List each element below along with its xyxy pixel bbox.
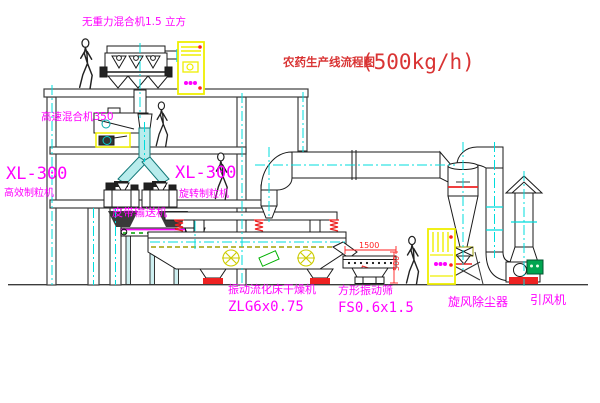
indicator-red-dot	[449, 235, 453, 239]
label-dryer-name: 振动流化床干燥机	[228, 282, 316, 296]
label-gravityless-mixer: 无重力混合机1.5 立方	[82, 15, 186, 28]
label-fan: 引风机	[530, 293, 566, 307]
label-granulator-right-name: 旋转制粒机	[179, 187, 229, 200]
exhaust-duct	[261, 150, 452, 218]
person-figure-1	[80, 39, 92, 89]
label-granulator-right-model: XL-300	[175, 163, 236, 183]
page-title-capacity: (500kg/h)	[361, 50, 475, 74]
cad-flow-diagram: 农药生产线流程图 (500kg/h) 无重力混合机1.5 立方 高速混合机350…	[0, 0, 600, 403]
granulator-left	[104, 183, 139, 207]
gravityless-mixer	[100, 46, 177, 113]
indicator-red-dot	[198, 86, 202, 90]
control-cabinet-ground	[428, 229, 455, 284]
label-dryer-model: ZLG6x0.75	[228, 299, 304, 315]
label-granulator-left-name: 高效制粒机	[4, 186, 54, 199]
person-figure-2	[156, 102, 167, 147]
drawing-surface: 农药生产线流程图 (500kg/h) 无重力混合机1.5 立方 高速混合机350…	[0, 0, 600, 403]
dryer-hood-plate	[165, 212, 337, 220]
vibrating-screen	[343, 256, 396, 284]
fan-motor	[527, 260, 543, 274]
label-belt-conveyor: 皮带输送机	[112, 205, 167, 219]
person-figure-4	[407, 236, 419, 284]
dim-screen-height: 500	[392, 256, 401, 271]
dryer-base-left	[203, 278, 223, 284]
indicator-red-dot	[198, 45, 202, 49]
control-cabinet-top	[178, 42, 204, 94]
indicator-red-dot	[449, 263, 453, 267]
dim-screen-length: 1500	[359, 241, 379, 250]
label-cyclone: 旋风除尘器	[448, 294, 508, 309]
slab-top	[44, 89, 308, 97]
label-granulator-left-model: XL-300	[6, 164, 67, 184]
label-high-speed-mixer: 高速混合机350	[41, 110, 114, 123]
label-screen-model: FS0.6x1.5	[338, 300, 414, 316]
label-screen-name: 方形振动筛	[338, 283, 393, 297]
granulator-right	[142, 183, 177, 207]
